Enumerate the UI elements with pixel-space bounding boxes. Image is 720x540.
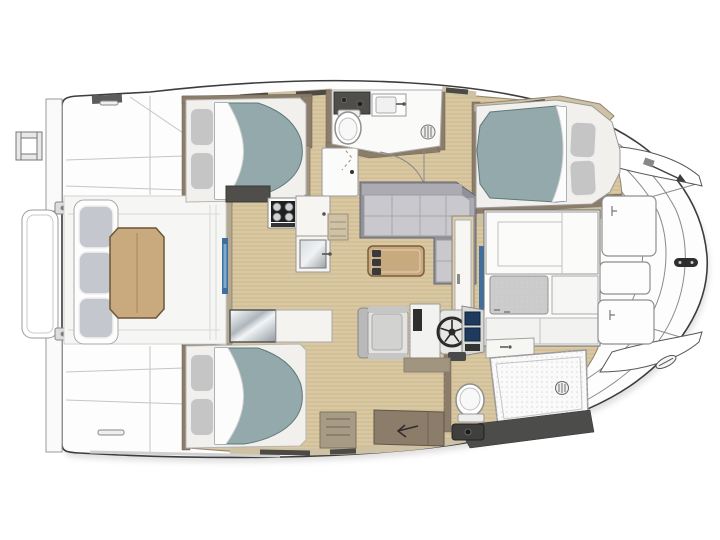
- stairs-block: [320, 412, 356, 448]
- helm-step: [404, 358, 450, 372]
- nav-screen: [465, 328, 480, 341]
- seacock-fixture: [452, 424, 484, 440]
- helm-chair-cushion: [372, 314, 402, 350]
- counter-knob: [357, 101, 363, 107]
- pillow: [569, 121, 597, 158]
- berth-cabin: [484, 210, 600, 346]
- deck-hatch: [602, 196, 656, 256]
- vanity-mirror: [230, 310, 276, 342]
- pillow: [190, 398, 214, 436]
- helm-chair-armrest: [368, 353, 408, 360]
- forward-cabin: [474, 96, 620, 208]
- bench-cushion: [79, 206, 113, 248]
- head1-sink-basin: [376, 97, 396, 113]
- throttle: [448, 352, 466, 361]
- pillow: [569, 159, 597, 196]
- yacht-floorplan-illustration: [0, 0, 720, 540]
- cabinet-handle: [322, 212, 326, 216]
- coffee-table: [368, 246, 424, 276]
- cockpit-door-window-core: [224, 244, 227, 288]
- deck-hatch: [598, 300, 654, 344]
- toilet-icon: [456, 384, 484, 422]
- cockpit-bench-cushions: [79, 206, 113, 338]
- deck-hatches: [598, 196, 656, 344]
- bench-cushion: [79, 298, 113, 338]
- aft-cockpit: [64, 196, 228, 344]
- galley-cabinet: [296, 196, 330, 236]
- burner: [285, 203, 293, 211]
- shower-drain-icon: [556, 382, 569, 395]
- berth-panel-right: [552, 276, 598, 314]
- transom-step-lower: [46, 336, 62, 452]
- companionway-steps: [320, 410, 444, 448]
- berth-panel-top: [486, 212, 598, 274]
- counter-knob: [342, 98, 347, 103]
- wardrobe-handle: [457, 274, 460, 284]
- galley-steps: [328, 214, 348, 240]
- switch-panel: [465, 344, 480, 351]
- pillow: [190, 108, 214, 146]
- deck-handle-top: [100, 101, 118, 105]
- bow-cleat-icon: [674, 258, 698, 267]
- remote: [372, 259, 381, 266]
- nav-screen: [465, 312, 480, 325]
- galley-counter-dark: [226, 186, 270, 202]
- floorplan-stage: [0, 0, 720, 540]
- remote: [372, 250, 381, 257]
- stove-controls: [271, 223, 295, 227]
- toilet-icon: [335, 110, 361, 144]
- burner: [273, 213, 281, 221]
- console-side-window: [413, 309, 422, 331]
- pillow: [190, 152, 214, 190]
- table-remotes: [372, 250, 381, 275]
- deck-handle-bottom: [98, 430, 124, 435]
- burner: [273, 203, 281, 211]
- shower-drain-icon: [421, 125, 435, 139]
- deck-hatch: [600, 262, 650, 294]
- pantry-door-handle: [350, 170, 354, 174]
- swim-ladder-icon: [16, 132, 42, 160]
- remote: [372, 268, 381, 275]
- bench-cushion: [79, 252, 113, 294]
- helm-chair-armrest: [368, 306, 408, 313]
- berth-pad-texture: [490, 276, 548, 314]
- sofa-backrest-top: [362, 184, 462, 195]
- burner: [285, 213, 293, 221]
- transom-step-upper: [46, 99, 62, 211]
- mattress: [477, 106, 566, 202]
- pillow: [190, 354, 214, 392]
- vanity-counter: [276, 310, 332, 342]
